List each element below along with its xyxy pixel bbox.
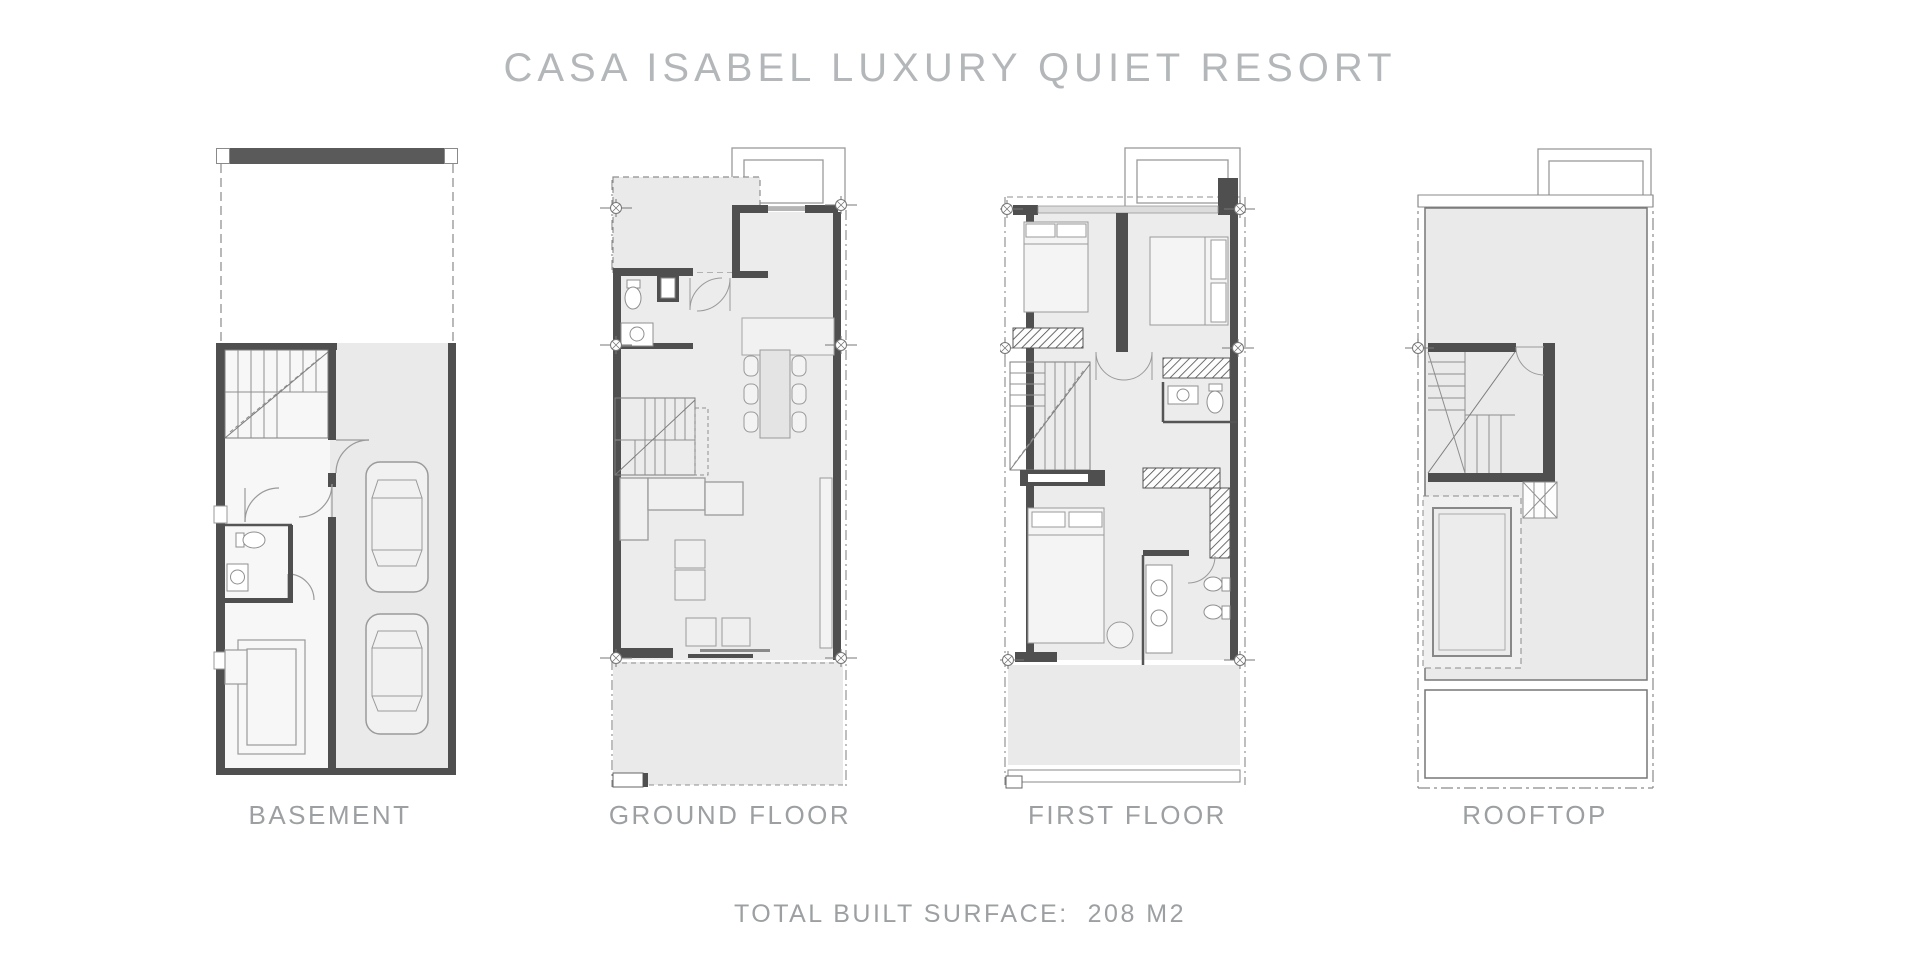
bed-icon	[1150, 237, 1228, 325]
coffee-table	[675, 540, 705, 600]
sink-icon	[621, 323, 653, 346]
terrace	[613, 662, 843, 787]
bed-icon	[1024, 222, 1088, 312]
sink-icon	[227, 564, 248, 591]
ground-floor-floorplan	[600, 140, 860, 800]
dining-table	[744, 350, 806, 438]
floorplan-sheet: CASA ISABEL LUXURY QUIET RESORT	[0, 0, 1920, 960]
street-retaining-wall	[216, 148, 458, 164]
caption-ground-floor: GROUND FLOOR	[600, 800, 860, 831]
sink-icon	[1146, 565, 1172, 653]
property-boundary	[221, 164, 453, 342]
car-icon	[366, 462, 428, 592]
toilet-icon	[236, 532, 265, 548]
kitchen-counter	[742, 318, 834, 355]
terrace	[1006, 665, 1240, 788]
pool	[1423, 496, 1521, 668]
caption-first-floor: FIRST FLOOR	[1000, 800, 1255, 831]
page-title: CASA ISABEL LUXURY QUIET RESORT	[0, 46, 1900, 91]
chair-icon	[1107, 622, 1133, 648]
small-stair	[1523, 482, 1557, 518]
lower-terrace	[1425, 690, 1647, 778]
shelf-niche	[1020, 470, 1105, 486]
caption-rooftop: ROOFTOP	[1405, 800, 1665, 831]
total-built-surface: TOTAL BUILT SURFACE: 208 M2	[0, 900, 1920, 929]
first-floor-floorplan	[1000, 140, 1255, 800]
toilet-icon	[625, 280, 641, 309]
car-icon	[366, 614, 428, 734]
basement-floorplan	[180, 140, 480, 800]
toilet-icon	[1207, 384, 1223, 413]
interior-floor	[620, 212, 838, 660]
parapet-band	[1418, 195, 1653, 207]
chimney-outline	[1538, 149, 1651, 197]
rooftop-floorplan	[1405, 140, 1665, 800]
tv-bench	[820, 478, 832, 648]
sink-icon	[1168, 386, 1198, 404]
caption-basement: BASEMENT	[180, 800, 480, 831]
